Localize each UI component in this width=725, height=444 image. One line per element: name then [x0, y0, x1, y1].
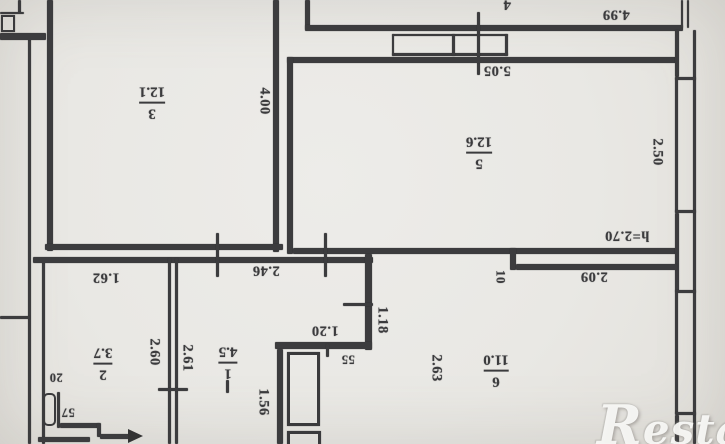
room-number: 2: [96, 365, 110, 382]
window-right2-cap-top: [675, 290, 696, 293]
dim-wall-step: 10: [495, 270, 508, 284]
tick-left-wall: [0, 316, 30, 319]
wall-right-pier: [675, 213, 679, 292]
dim-top-width: 4.99: [602, 7, 629, 22]
dim-room5-width: 5.05: [483, 63, 510, 78]
room-number: 5: [472, 154, 486, 171]
room-label-1: 1 4.5: [219, 342, 238, 381]
tick-hall-left: [216, 233, 219, 277]
window-top-end-right: [505, 34, 508, 56]
dim-room5-window: 2.50: [650, 138, 665, 165]
dim-hall-width: 2.46: [252, 263, 279, 278]
dim-closet-step: 55: [341, 353, 355, 366]
wall-room3-left: [47, 0, 53, 251]
wall-top-left: [0, 33, 46, 40]
wall-room3-bottom: [45, 244, 283, 250]
wall-room1-bottom: [275, 342, 372, 349]
wall-right-outer-face: [693, 30, 696, 444]
wall-top-right-dash-2: [687, 0, 689, 28]
room-area: 3.7: [94, 343, 113, 361]
dim-small-20: 20: [49, 371, 63, 384]
wall-room3-right: [273, 0, 279, 252]
tick-room1: [226, 380, 229, 393]
ceiling-height-note: h=2.70: [605, 228, 650, 243]
fraction-line: [219, 361, 238, 363]
step-line-1: [60, 423, 100, 428]
watermark-restate: Restate: [597, 398, 725, 444]
room-number: 3: [145, 104, 159, 121]
window-top-outer: [392, 34, 508, 36]
tick-divider: [158, 388, 188, 391]
room-label-5: 5 12.6: [466, 132, 492, 171]
fraction-line: [139, 101, 165, 103]
room-label-6: 6 11.0: [483, 350, 508, 389]
dim-room6-wall: 1.18: [375, 306, 390, 333]
room-label-4: 4: [503, 0, 511, 12]
wall-right-inner-top: [675, 30, 679, 77]
room-label-2: 2 3.7: [94, 343, 113, 382]
dim-room6-width: 2.63: [429, 354, 444, 381]
dim-room2-width: 1.62: [92, 270, 119, 285]
fraction-line: [466, 151, 492, 153]
wall-left-outer: [28, 35, 31, 444]
balcony-detail: [1, 15, 15, 32]
room-area: 12.1: [139, 82, 165, 100]
room-number: 1: [221, 364, 235, 381]
window-top-inner: [392, 53, 508, 56]
wall-top: [305, 25, 683, 31]
tick-top: [477, 12, 480, 75]
vent-shaft-lower: [287, 431, 321, 444]
wall-top-left-line: [0, 12, 24, 14]
wall-divider-1-2-b: [175, 258, 178, 444]
window-right1-cap-top: [675, 77, 696, 80]
wall-top-right-dash-1: [681, 0, 683, 28]
tick-closet-step: [326, 344, 329, 357]
wall-shaft-left: [277, 349, 283, 444]
dim-closet-width: 1.20: [311, 323, 338, 338]
window-right1-inner: [675, 77, 678, 213]
room-label-3: 3 12.1: [139, 82, 165, 121]
window-right2-inner: [675, 292, 678, 414]
floor-plan: 3 12.1 5 12.6 1 4.5 2 3.7 6 11.0 4 4.99 …: [0, 0, 725, 444]
tick-room6-wall: [343, 303, 373, 306]
room-area: 4.5: [219, 342, 238, 360]
dim-small-57: 57: [61, 406, 75, 419]
fraction-line: [94, 362, 113, 364]
wall-mid-lower: [33, 257, 373, 263]
tick-hall-right: [324, 233, 327, 277]
vent-shaft-upper: [287, 352, 320, 426]
dim-shaft-height: 1.56: [256, 388, 271, 415]
dim-room1-height: 2.61: [180, 344, 195, 371]
window-top-end-left: [392, 34, 394, 56]
dim-room3-height: 4.00: [257, 87, 272, 114]
room-area: 12.6: [466, 132, 492, 150]
door-leaf: [43, 393, 56, 426]
wall-room5-bottom: [293, 248, 677, 254]
dim-room2-height: 2.60: [147, 338, 162, 365]
wall-room5-top: [287, 57, 677, 63]
window-top-mullion: [452, 34, 455, 56]
step-line-3: [38, 437, 90, 442]
room-number: 6: [489, 372, 503, 389]
fraction-line: [483, 369, 508, 371]
entrance-arrow-icon: [128, 429, 143, 443]
dim-niche-width: 2.09: [580, 269, 607, 284]
wall-room5-left: [287, 57, 293, 254]
wall-divider-1-2-a: [168, 258, 171, 444]
wall-room6-left: [365, 254, 372, 350]
room-area: 11.0: [483, 350, 508, 368]
